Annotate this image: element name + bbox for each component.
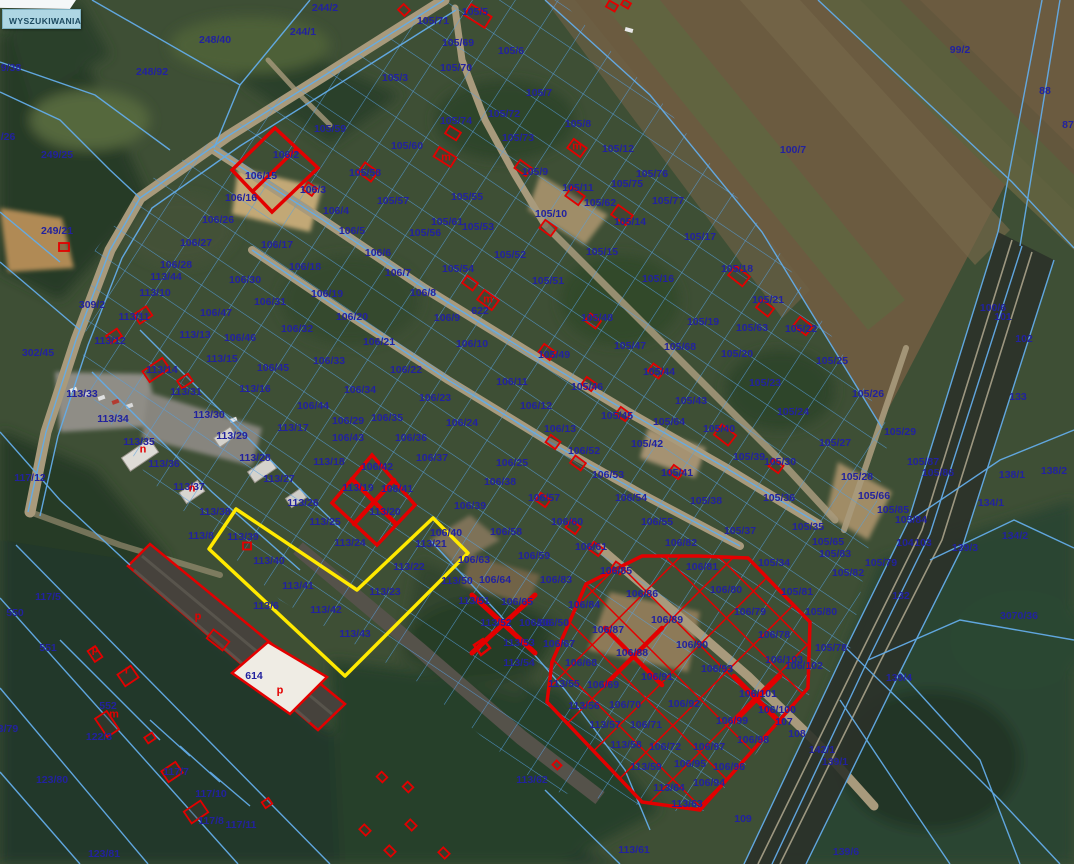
building-outline [621,0,631,9]
building-outline [403,782,414,793]
search-button[interactable]: WYSZUKIWANIA [2,9,81,29]
building-outline [88,646,103,662]
building-outline [377,772,388,783]
building-outline [117,666,138,687]
map-viewer[interactable]: 9/38248/92248/40244/2244/1/26249/25249/2… [0,0,1074,864]
building-outline [438,847,449,858]
building-outline [59,243,69,251]
parcel-boundaries-layer [0,0,1074,864]
building-outline [207,630,230,651]
building-outline [184,801,208,824]
building-outline [606,0,618,11]
building-outline [243,543,251,550]
panel-edge [0,0,76,9]
building-outline [405,819,416,830]
building-outline [161,762,182,782]
building-outline [359,824,370,835]
building-outline [384,845,395,856]
building-outline [95,711,119,737]
building-outline [398,4,410,16]
building-outline [262,798,273,808]
